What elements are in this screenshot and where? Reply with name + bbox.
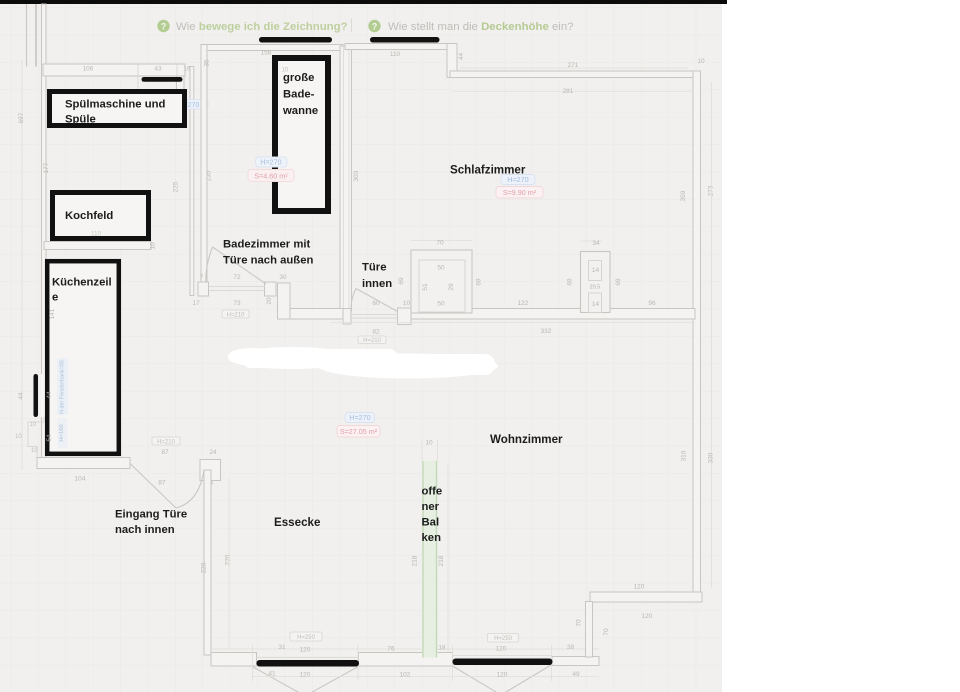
svg-text:87: 87 xyxy=(161,449,169,456)
svg-text:H=160: H=160 xyxy=(59,424,65,441)
svg-text:102: 102 xyxy=(400,672,411,679)
svg-text:141: 141 xyxy=(49,308,56,319)
svg-text:72: 72 xyxy=(233,274,241,281)
svg-text:10: 10 xyxy=(282,68,289,74)
svg-text:7: 7 xyxy=(200,274,204,281)
svg-text:S=9.90 m²: S=9.90 m² xyxy=(503,188,537,197)
svg-text:H=270: H=270 xyxy=(260,158,281,167)
svg-text:Essecke: Essecke xyxy=(274,516,321,529)
svg-text:87: 87 xyxy=(158,480,166,487)
svg-text:122: 122 xyxy=(518,300,529,307)
svg-text:35: 35 xyxy=(204,59,211,67)
svg-text:e: e xyxy=(52,292,58,304)
svg-text:10: 10 xyxy=(697,58,705,65)
svg-text:106: 106 xyxy=(83,66,94,73)
svg-text:Bade-: Bade- xyxy=(283,89,315,101)
svg-text:Küchenzeil: Küchenzeil xyxy=(52,277,112,289)
svg-text:S=4.60 m²: S=4.60 m² xyxy=(254,171,288,180)
svg-text:Wie bewege ich die Zeichnung?: Wie bewege ich die Zeichnung? xyxy=(176,21,348,33)
svg-text:H=270: H=270 xyxy=(349,413,370,422)
svg-text:?: ? xyxy=(372,21,377,31)
svg-text:359: 359 xyxy=(680,190,687,201)
svg-text:10: 10 xyxy=(425,440,433,447)
svg-text:69: 69 xyxy=(476,278,483,286)
svg-text:697: 697 xyxy=(18,112,25,123)
svg-text:38: 38 xyxy=(567,644,575,651)
svg-text:H=270: H=270 xyxy=(507,175,528,184)
svg-text:218: 218 xyxy=(438,555,445,566)
svg-text:177: 177 xyxy=(43,162,50,173)
svg-text:220: 220 xyxy=(201,562,208,573)
svg-text:16: 16 xyxy=(183,66,191,73)
svg-text:Wie stellt man die Deckenhöhe: Wie stellt man die Deckenhöhe ein? xyxy=(388,21,574,33)
svg-text:Kochfeld: Kochfeld xyxy=(65,210,113,222)
svg-text:30: 30 xyxy=(279,274,287,281)
svg-text:70: 70 xyxy=(436,240,444,247)
svg-text:41: 41 xyxy=(268,671,276,678)
svg-text:große: große xyxy=(283,72,314,84)
svg-text:50: 50 xyxy=(437,301,445,308)
svg-text:innen: innen xyxy=(362,278,392,290)
svg-text:70: 70 xyxy=(576,619,583,627)
svg-text:ner: ner xyxy=(422,501,440,513)
svg-text:H=210: H=210 xyxy=(157,440,176,446)
svg-text:120: 120 xyxy=(496,646,507,653)
svg-text:120: 120 xyxy=(497,672,508,679)
svg-text:310: 310 xyxy=(681,450,688,461)
svg-text:Spülmaschine und: Spülmaschine und xyxy=(65,99,166,111)
svg-text:69: 69 xyxy=(615,278,622,286)
svg-text:Badezimmer mit: Badezimmer mit xyxy=(223,239,311,251)
svg-text:104: 104 xyxy=(75,476,86,483)
svg-text:158: 158 xyxy=(261,50,272,57)
svg-text:20: 20 xyxy=(266,297,273,305)
svg-text:Bal: Bal xyxy=(422,517,440,529)
svg-text:120: 120 xyxy=(634,584,645,591)
svg-text:225: 225 xyxy=(173,181,180,192)
svg-text:120: 120 xyxy=(300,647,311,654)
svg-text:218: 218 xyxy=(412,555,419,566)
svg-text:31: 31 xyxy=(278,644,286,651)
svg-text:54: 54 xyxy=(46,434,53,442)
svg-text:H der Fensterbank=85: H der Fensterbank=85 xyxy=(60,360,66,414)
svg-text:330: 330 xyxy=(708,452,715,463)
svg-text:44: 44 xyxy=(46,391,53,399)
svg-text:H=210: H=210 xyxy=(363,338,382,344)
svg-text:69: 69 xyxy=(398,277,405,285)
svg-text:51: 51 xyxy=(422,283,429,291)
svg-text:73: 73 xyxy=(233,300,241,307)
svg-text:10: 10 xyxy=(31,448,38,454)
svg-text:Spüle: Spüle xyxy=(65,114,96,126)
svg-text:Eingang Türe: Eingang Türe xyxy=(115,509,187,521)
svg-text:271: 271 xyxy=(568,62,579,69)
svg-text:10: 10 xyxy=(403,300,411,307)
svg-text:110: 110 xyxy=(91,231,102,238)
svg-text:?: ? xyxy=(161,21,166,31)
svg-text:ken: ken xyxy=(422,532,442,544)
svg-text:110: 110 xyxy=(390,51,401,58)
svg-text:S=27.05 m²: S=27.05 m² xyxy=(340,427,378,436)
svg-text:70: 70 xyxy=(603,628,610,636)
svg-text:14: 14 xyxy=(592,267,600,274)
svg-text:10: 10 xyxy=(150,242,157,250)
svg-text:nach innen: nach innen xyxy=(115,524,175,536)
svg-text:69: 69 xyxy=(567,278,574,286)
svg-text:303: 303 xyxy=(353,170,360,181)
svg-text:332: 332 xyxy=(541,328,552,335)
svg-text:34: 34 xyxy=(592,240,600,247)
svg-text:wanne: wanne xyxy=(282,105,318,117)
svg-text:Wohnzimmer: Wohnzimmer xyxy=(490,433,563,446)
svg-text:14: 14 xyxy=(592,301,600,308)
svg-text:20.5: 20.5 xyxy=(590,285,601,291)
svg-text:Türe nach außen: Türe nach außen xyxy=(223,255,313,267)
svg-text:120: 120 xyxy=(642,613,653,620)
svg-text:44: 44 xyxy=(458,53,465,61)
svg-text:18: 18 xyxy=(438,645,446,652)
svg-text:82: 82 xyxy=(372,329,380,336)
svg-text:273: 273 xyxy=(708,185,715,196)
svg-text:24: 24 xyxy=(209,449,217,456)
svg-text:281: 281 xyxy=(563,88,574,95)
svg-text:H=250: H=250 xyxy=(494,636,513,642)
svg-text:10: 10 xyxy=(15,434,22,440)
svg-text:44: 44 xyxy=(18,392,25,400)
svg-text:H=210: H=210 xyxy=(227,313,246,319)
svg-text:H=250: H=250 xyxy=(297,635,316,641)
svg-text:10: 10 xyxy=(30,422,37,428)
svg-text:96: 96 xyxy=(648,300,656,307)
svg-text:50: 50 xyxy=(437,265,445,272)
svg-text:Türe: Türe xyxy=(362,262,386,274)
svg-text:29: 29 xyxy=(448,283,455,291)
svg-text:Schlafzimmer: Schlafzimmer xyxy=(450,164,526,177)
svg-text:120: 120 xyxy=(300,672,311,679)
svg-text:60: 60 xyxy=(372,300,380,307)
svg-text:offe: offe xyxy=(422,486,443,498)
svg-text:49: 49 xyxy=(572,671,580,678)
svg-text:220: 220 xyxy=(225,554,232,565)
svg-text:43: 43 xyxy=(154,66,162,73)
svg-text:17: 17 xyxy=(192,300,200,307)
svg-text:76: 76 xyxy=(387,646,395,653)
